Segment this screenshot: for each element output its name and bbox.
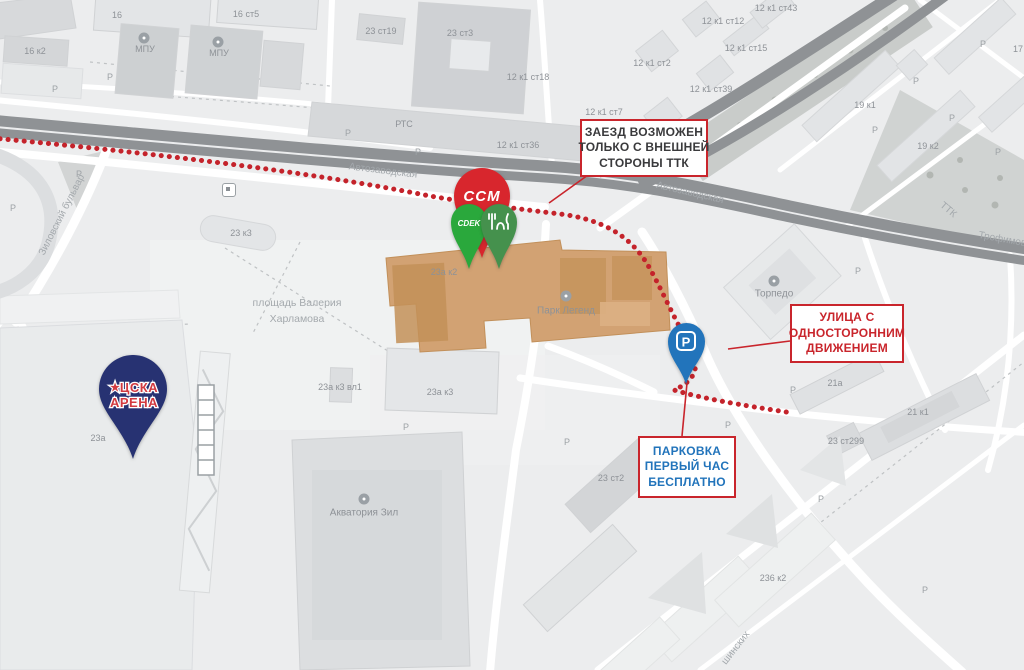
callout-line: ОДНОСТОРОННИМ [789,326,905,341]
callout-line: ПАРКОВКА [653,444,721,459]
cska-arena-pin[interactable]: ★ ЦСКА АРЕНА [93,355,175,468]
callout-one-way-street: УЛИЦА С ОДНОСТОРОННИМ ДВИЖЕНИЕМ [790,304,904,363]
restaurant-pin[interactable] [478,203,520,278]
callout-parking-free-hour: ПАРКОВКА ПЕРВЫЙ ЧАС БЕСПЛАТНО [638,436,736,498]
cska-pin-label-line2: АРЕНА [110,395,158,410]
callout-line: БЕСПЛАТНО [648,475,726,490]
parking-pin-glyph: P [682,335,691,350]
pin-shape [481,204,517,269]
callout-line: ПЕРВЫЙ ЧАС [645,459,729,474]
cska-pin-label-line1: ЦСКА [120,380,158,395]
parking-pin[interactable]: P [665,322,707,391]
callout-entry-from-ttk: ЗАЕЗД ВОЗМОЖЕН ТОЛЬКО С ВНЕШНЕЙ СТОРОНЫ … [580,119,708,177]
callout-line: ЗАЕЗД ВОЗМОЖЕН [585,125,703,140]
callout-line: УЛИЦА С [820,310,875,325]
callout-line: ТОЛЬКО С ВНЕШНЕЙ [579,140,710,155]
callout-line: ДВИЖЕНИЕМ [806,341,888,356]
callout-line: СТОРОНЫ ТТК [599,156,689,171]
ladder-detail [198,385,214,475]
cska-star-icon: ★ [110,382,120,394]
map-canvas[interactable]: 16 к216МПУ16 ст5МПУ23 ст1923 ст3РТС12 к1… [0,0,1024,670]
